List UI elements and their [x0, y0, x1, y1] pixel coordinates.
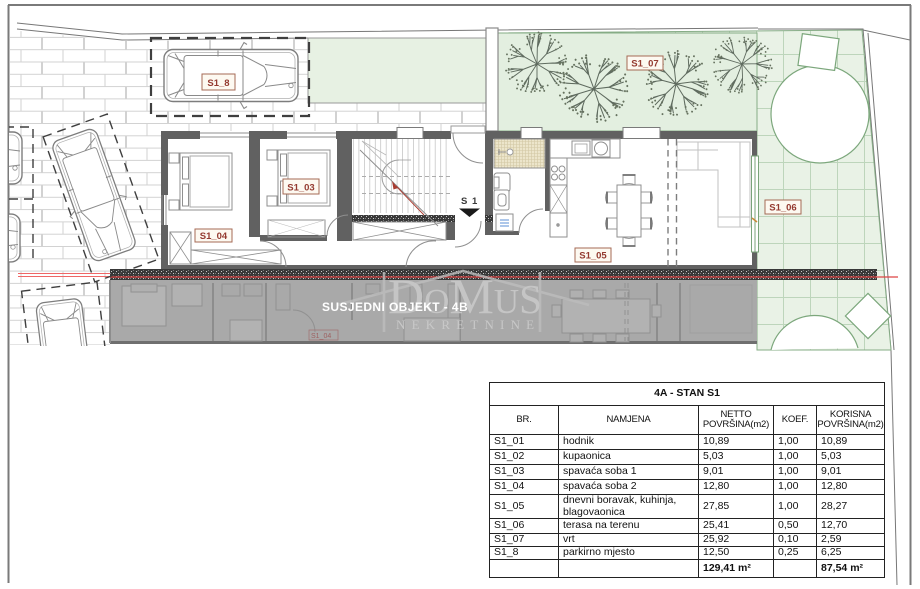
- svg-text:S1_04: S1_04: [200, 231, 228, 242]
- svg-text:NEKRETNINE: NEKRETNINE: [396, 317, 540, 332]
- svg-text:S1_04: S1_04: [311, 333, 331, 340]
- svg-text:S1_05: S1_05: [579, 251, 607, 262]
- svg-text:S 1: S 1: [461, 196, 478, 207]
- svg-text:SUSJEDNI OBJEKT - 4B: SUSJEDNI OBJEKT - 4B: [322, 300, 468, 314]
- svg-text:S1_06: S1_06: [769, 203, 796, 214]
- svg-text:S1_07: S1_07: [631, 59, 658, 70]
- svg-text:S1_03: S1_03: [287, 183, 314, 194]
- svg-text:S1_8: S1_8: [207, 78, 229, 89]
- svg-text:DOMUS: DOMUS: [388, 268, 542, 324]
